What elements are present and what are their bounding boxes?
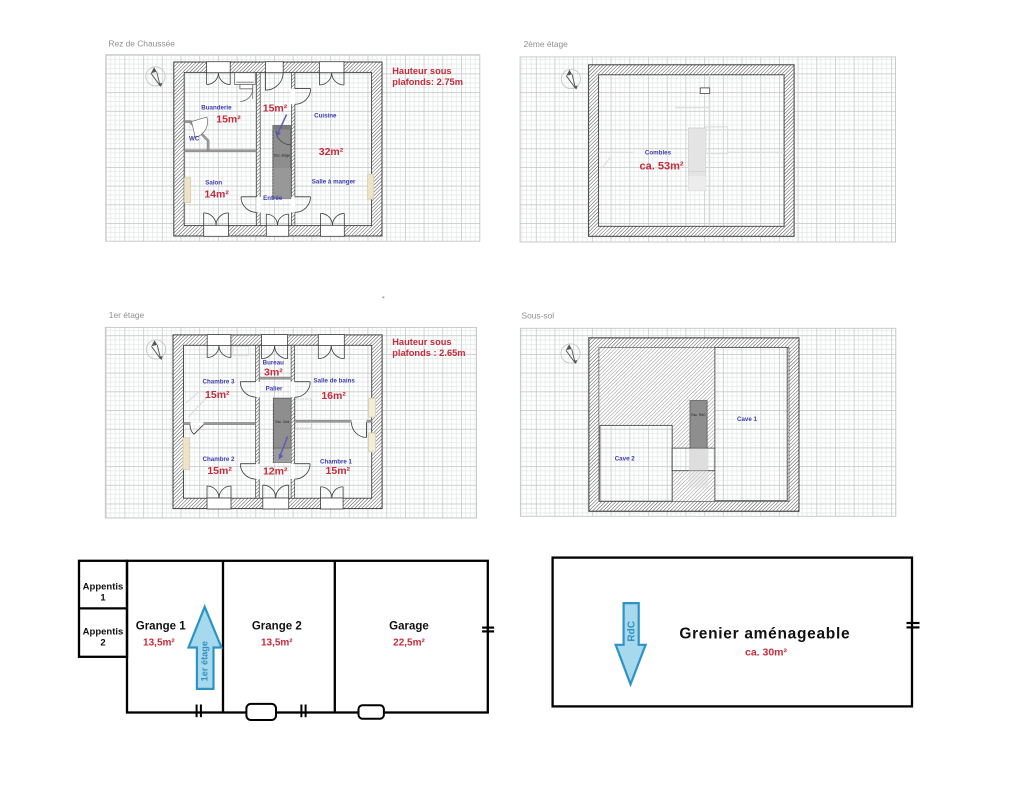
svg-text:15m²: 15m² <box>326 465 351 477</box>
svg-text:2ème étage: 2ème étage <box>524 39 569 49</box>
svg-text:Garage: Garage <box>389 621 429 633</box>
svg-text:Hauteur sous: Hauteur sous <box>392 337 451 347</box>
svg-text:Appentis: Appentis <box>83 582 124 593</box>
svg-text:ca. 30m²: ca. 30m² <box>745 647 788 659</box>
svg-text:15m²: 15m² <box>205 389 230 401</box>
svg-text:1: 1 <box>100 593 106 604</box>
svg-text:1er étage: 1er étage <box>109 310 145 320</box>
svg-text:15m²: 15m² <box>216 114 241 126</box>
svg-text:ca. 53m²: ca. 53m² <box>639 161 683 173</box>
svg-text:Rez de Chaussée: Rez de Chaussée <box>108 38 175 48</box>
svg-text:14m²: 14m² <box>204 188 229 200</box>
svg-text:15m²: 15m² <box>207 465 232 477</box>
svg-text:Chambre 3: Chambre 3 <box>203 378 236 385</box>
svg-text:Sous-sol: Sous-sol <box>522 311 555 321</box>
svg-text:plafonds : 2.65m: plafonds : 2.65m <box>392 348 465 358</box>
svg-text:Bureau: Bureau <box>263 359 285 366</box>
svg-text:13,5m²: 13,5m² <box>261 637 293 648</box>
svg-text:RdC: RdC <box>626 621 637 642</box>
svg-text:Grange 2: Grange 2 <box>252 621 302 633</box>
svg-text:1er étage: 1er étage <box>199 641 209 681</box>
svg-text:WC: WC <box>189 136 200 143</box>
svg-text:Grange 1: Grange 1 <box>136 621 186 633</box>
svg-text:plafonds: 2.75m: plafonds: 2.75m <box>392 77 463 87</box>
svg-text:Cave 1: Cave 1 <box>737 416 758 423</box>
svg-text:Esc. RdC: Esc. RdC <box>691 413 706 417</box>
svg-text:Esc. étage: Esc. étage <box>274 153 290 157</box>
svg-text:Combles: Combles <box>645 149 672 156</box>
svg-text:32m²: 32m² <box>319 146 344 158</box>
svg-text:Salon: Salon <box>205 179 222 186</box>
svg-text:Salle de bains: Salle de bains <box>314 377 356 384</box>
svg-text:Chambre 2: Chambre 2 <box>203 456 236 463</box>
svg-text:Entrée: Entrée <box>263 195 283 202</box>
svg-text:Appentis: Appentis <box>83 627 124 638</box>
svg-text:Grenier aménageable: Grenier aménageable <box>679 626 850 643</box>
svg-text:15m²: 15m² <box>263 103 288 115</box>
svg-text:Cuisine: Cuisine <box>314 113 337 120</box>
svg-text:13,5m²: 13,5m² <box>143 637 175 648</box>
svg-text:Buanderie: Buanderie <box>201 104 232 111</box>
svg-text:Cave 2: Cave 2 <box>615 455 636 462</box>
svg-text:12m²: 12m² <box>263 465 288 477</box>
svg-text:22,5m²: 22,5m² <box>393 637 425 648</box>
svg-text:16m²: 16m² <box>321 390 346 402</box>
svg-text:Hauteur sous: Hauteur sous <box>392 66 451 76</box>
svg-text:Esc. Châ: Esc. Châ <box>275 420 289 424</box>
svg-text:Salle à manger: Salle à manger <box>312 178 356 185</box>
svg-text:2: 2 <box>100 638 105 649</box>
svg-text:3m²: 3m² <box>264 366 283 378</box>
svg-text:Palier: Palier <box>266 386 283 393</box>
